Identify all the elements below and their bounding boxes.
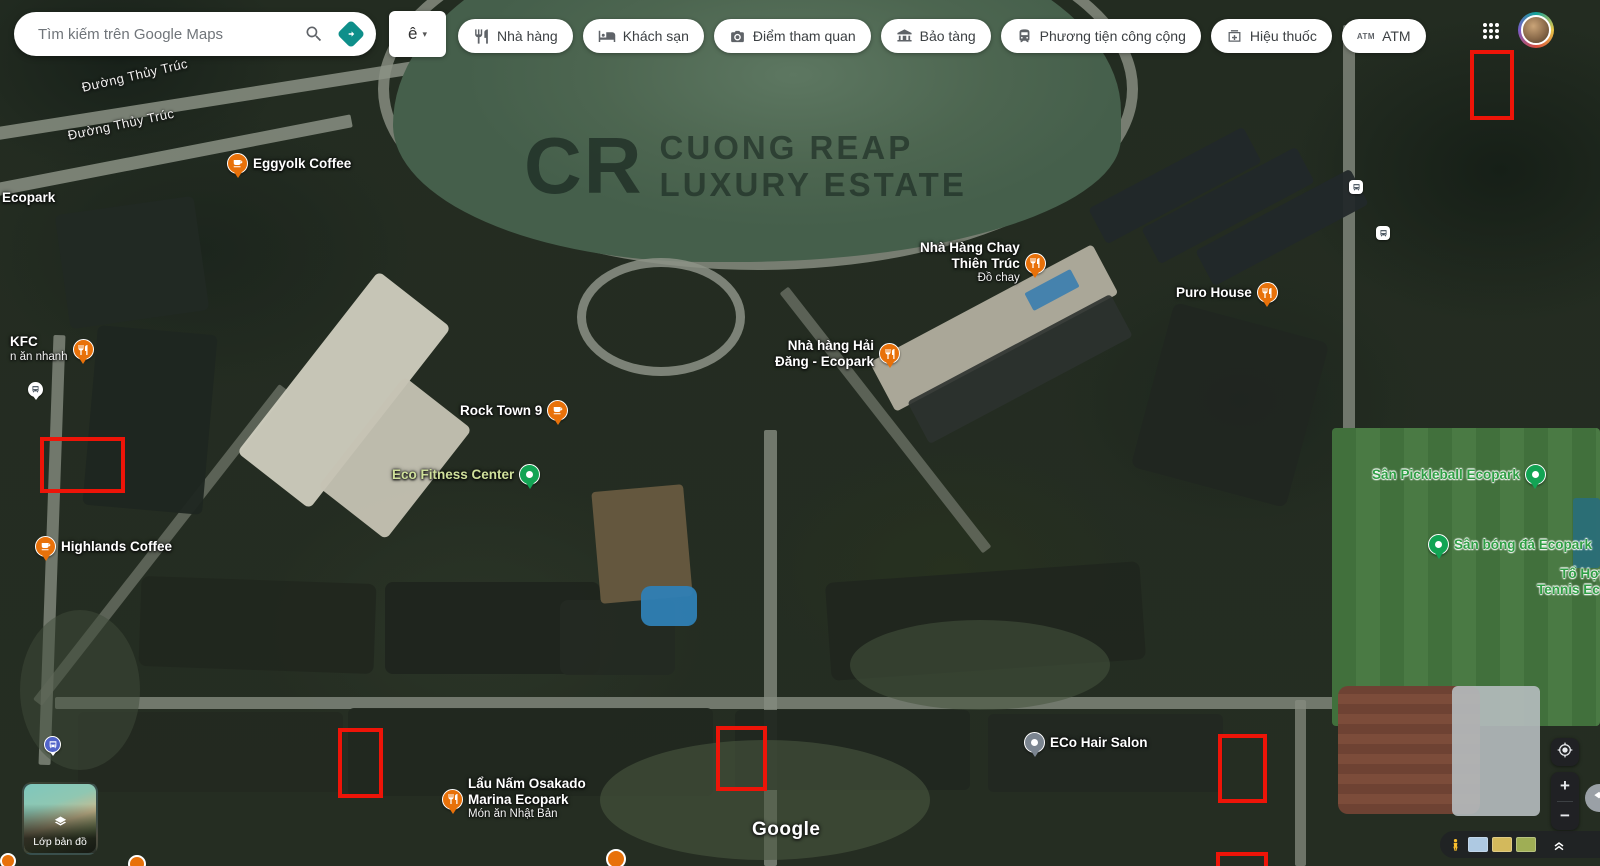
- place-row: Nhà Hàng ChayThiên TrúcĐồ chay: [920, 240, 1046, 287]
- restaurant-pin-icon[interactable]: [879, 343, 900, 364]
- imagery-bar: [1440, 831, 1600, 858]
- restaurant-icon: [473, 28, 490, 45]
- place-row: Lẩu Nấm OsakadoMarina EcoparkMón ăn Nhật…: [442, 776, 586, 823]
- annotation-rectangle: [40, 437, 125, 493]
- diamond-icon: [1592, 789, 1600, 808]
- coffee-pin-icon[interactable]: [547, 400, 568, 421]
- coffee-pin-icon[interactable]: [227, 153, 248, 174]
- place-nha-hang-chay-thien-truc[interactable]: Nhà Hàng ChayThiên TrúcĐồ chay: [920, 240, 1046, 287]
- directions-arrow-icon: [344, 27, 358, 41]
- restaurant-pin-icon[interactable]: [73, 339, 94, 360]
- partial-poi-pin[interactable]: [0, 853, 16, 866]
- imagery-thumbnail[interactable]: [1468, 837, 1488, 852]
- green-pin-icon[interactable]: [519, 464, 540, 485]
- place-puro-house[interactable]: Puro House: [1176, 282, 1278, 303]
- restaurant-pin-icon[interactable]: [442, 789, 463, 810]
- place-label: Tổ HợpTennis Eco: [1537, 566, 1600, 597]
- chip-label: Phương tiện công cộng: [1040, 28, 1186, 44]
- place-label: KFCn ăn nhanh: [10, 334, 68, 365]
- bus-white-pin-icon[interactable]: [28, 382, 43, 397]
- green-pin-icon[interactable]: [1525, 464, 1546, 485]
- chevron-double-up-icon[interactable]: [1551, 837, 1567, 853]
- pharmacy-icon: [1226, 28, 1243, 45]
- annotation-rectangle: [338, 728, 383, 798]
- user-avatar[interactable]: [1518, 12, 1554, 48]
- map-layers-widget[interactable]: Lớp bản đồ: [22, 782, 98, 855]
- apps-grid-dots: [1483, 23, 1487, 27]
- place-label: Nhà hàng HảiĐăng - Ecopark: [775, 338, 874, 369]
- museum-icon: [896, 28, 913, 45]
- chip-museum[interactable]: Bảo tàng: [881, 19, 991, 53]
- place-label: Sân bóng đá Ecopark: [1454, 537, 1592, 553]
- place-label: Highlands Coffee: [61, 539, 172, 555]
- attraction-icon: [729, 28, 746, 45]
- poi-layer: EcoparkEggyolk CoffeeKFCn ăn nhanhHighla…: [0, 0, 1600, 866]
- place-rock-town-9[interactable]: Rock Town 9: [460, 400, 568, 421]
- place-eco-fitness-center[interactable]: Eco Fitness Center: [392, 464, 540, 485]
- imagery-thumbnails: [1468, 837, 1536, 852]
- green-pin-icon[interactable]: [1428, 534, 1449, 555]
- place-label: Puro House: [1176, 285, 1252, 301]
- map-canvas[interactable]: CR CUONG REAP LUXURY ESTATE EcoparkEggyo…: [0, 0, 1600, 866]
- pegman-icon[interactable]: [1449, 836, 1463, 854]
- search-box[interactable]: [14, 12, 376, 56]
- place-row: Tổ HợpTennis Eco: [1537, 566, 1600, 597]
- chip-label: Nhà hàng: [497, 28, 558, 44]
- chip-transit[interactable]: Phương tiện công cộng: [1001, 19, 1201, 53]
- place-label: Ecopark: [2, 190, 55, 206]
- chip-restaurant[interactable]: Nhà hàng: [458, 19, 573, 53]
- layers-overlay: Lớp bản đồ: [24, 804, 96, 853]
- partial-poi-pin[interactable]: [606, 849, 626, 866]
- transit-icon: [1016, 28, 1033, 45]
- imagery-thumbnail[interactable]: [1492, 837, 1512, 852]
- place-bus-stop-blue[interactable]: [44, 736, 66, 753]
- coffee-pin-icon[interactable]: [35, 536, 56, 557]
- google-logo[interactable]: Google: [752, 819, 820, 841]
- place-row: Highlands Coffee: [35, 536, 172, 557]
- search-icon[interactable]: [302, 22, 326, 46]
- atm-icon: ATM: [1357, 32, 1375, 41]
- place-label: Eco Fitness Center: [392, 467, 514, 483]
- place-row: Puro House: [1176, 282, 1278, 303]
- zoom-in-button[interactable]: +: [1554, 775, 1576, 797]
- chip-label: Điểm tham quan: [753, 28, 856, 44]
- google-maps-window: CR CUONG REAP LUXURY ESTATE EcoparkEggyo…: [0, 0, 1600, 866]
- annotation-rectangle: [1218, 734, 1267, 803]
- place-row: Sân bóng đá Ecopark: [1428, 534, 1592, 555]
- category-chips: Nhà hàngKhách sạnĐiểm tham quanBảo tàngP…: [458, 19, 1426, 53]
- my-location-button[interactable]: [1551, 738, 1579, 766]
- chip-attraction[interactable]: Điểm tham quan: [714, 19, 871, 53]
- hotel-icon: [598, 27, 616, 45]
- place-row: Eco Fitness Center: [392, 464, 540, 485]
- place-eco-hair-salon[interactable]: ECo Hair Salon: [1024, 732, 1148, 753]
- place-to-hop-tennis-ecopark[interactable]: Tổ HợpTennis Eco: [1537, 566, 1600, 597]
- place-nha-hang-hai-dang-ecopark[interactable]: Nhà hàng HảiĐăng - Ecopark: [775, 338, 900, 369]
- place-eggyolk-coffee[interactable]: Eggyolk Coffee: [227, 153, 351, 174]
- chip-label: Khách sạn: [623, 28, 689, 44]
- place-label: Eggyolk Coffee: [253, 156, 351, 172]
- my-location-icon: [1557, 742, 1573, 763]
- place-ecopark-label[interactable]: Ecopark: [2, 190, 55, 206]
- annotation-rectangle: [1470, 50, 1514, 120]
- input-method-label: ê: [408, 24, 417, 44]
- place-row: Rock Town 9: [460, 400, 568, 421]
- place-label: ECo Hair Salon: [1050, 735, 1148, 751]
- chip-pharmacy[interactable]: Hiệu thuốc: [1211, 19, 1332, 53]
- chip-label: Hiệu thuốc: [1250, 28, 1317, 44]
- place-label: Nhà Hàng ChayThiên TrúcĐồ chay: [920, 240, 1020, 287]
- place-label: Rock Town 9: [460, 403, 542, 419]
- layers-icon: [53, 814, 68, 834]
- zoom-divider: [1557, 801, 1573, 802]
- place-bus-stop-white[interactable]: [28, 382, 48, 397]
- chip-hotel[interactable]: Khách sạn: [583, 19, 704, 53]
- partial-poi-pin[interactable]: [128, 855, 146, 866]
- place-row: ECo Hair Salon: [1024, 732, 1148, 753]
- place-row: KFCn ăn nhanh: [10, 334, 94, 365]
- place-row: Ecopark: [2, 190, 55, 206]
- restaurant-pin-icon[interactable]: [1257, 282, 1278, 303]
- apps-grid-icon[interactable]: [1482, 22, 1500, 40]
- search-input[interactable]: [36, 25, 302, 44]
- place-san-bong-da-ecopark[interactable]: Sân bóng đá Ecopark: [1428, 534, 1592, 555]
- chip-atm[interactable]: ATMATM: [1342, 19, 1426, 53]
- chip-label: ATM: [1382, 28, 1411, 44]
- place-highlands-coffee[interactable]: Highlands Coffee: [35, 536, 172, 557]
- road-label: Đường Thủy Trúc: [66, 106, 175, 143]
- annotation-rectangle: [1216, 852, 1268, 866]
- avatar-photo: [1521, 15, 1551, 45]
- place-row: Eggyolk Coffee: [227, 153, 351, 174]
- zoom-out-button[interactable]: −: [1554, 805, 1576, 827]
- gray-pin-icon[interactable]: [1024, 732, 1045, 753]
- place-row: [44, 736, 66, 753]
- place-label: Lẩu Nấm OsakadoMarina EcoparkMón ăn Nhật…: [468, 776, 586, 823]
- place-kfc[interactable]: KFCn ăn nhanh: [10, 334, 94, 365]
- imagery-thumbnail[interactable]: [1516, 837, 1536, 852]
- place-san-pickleball-ecopark[interactable]: Sân Pickleball Ecopark: [1372, 464, 1546, 485]
- restaurant-pin-icon[interactable]: [1025, 253, 1046, 274]
- place-row: [28, 382, 48, 397]
- transit-stop-icon[interactable]: [1349, 180, 1363, 194]
- road-label: Đường Thủy Trúc: [80, 56, 189, 95]
- chevron-down-icon: ▾: [422, 29, 427, 40]
- place-lau-nam-osakado-marina-ecopark[interactable]: Lẩu Nấm OsakadoMarina EcoparkMón ăn Nhật…: [442, 776, 586, 823]
- annotation-rectangle: [716, 726, 767, 791]
- input-method-button[interactable]: ê ▾: [389, 11, 446, 57]
- place-label: Sân Pickleball Ecopark: [1372, 467, 1520, 483]
- place-row: Nhà hàng HảiĐăng - Ecopark: [775, 338, 900, 369]
- place-row: Sân Pickleball Ecopark: [1372, 464, 1546, 485]
- transit-stop-icon[interactable]: [1376, 226, 1390, 240]
- zoom-control: + −: [1551, 772, 1579, 830]
- bus-blue-pin-icon[interactable]: [44, 736, 61, 753]
- chip-label: Bảo tàng: [920, 28, 976, 44]
- directions-button[interactable]: [336, 19, 366, 49]
- layers-label: Lớp bản đồ: [33, 836, 87, 848]
